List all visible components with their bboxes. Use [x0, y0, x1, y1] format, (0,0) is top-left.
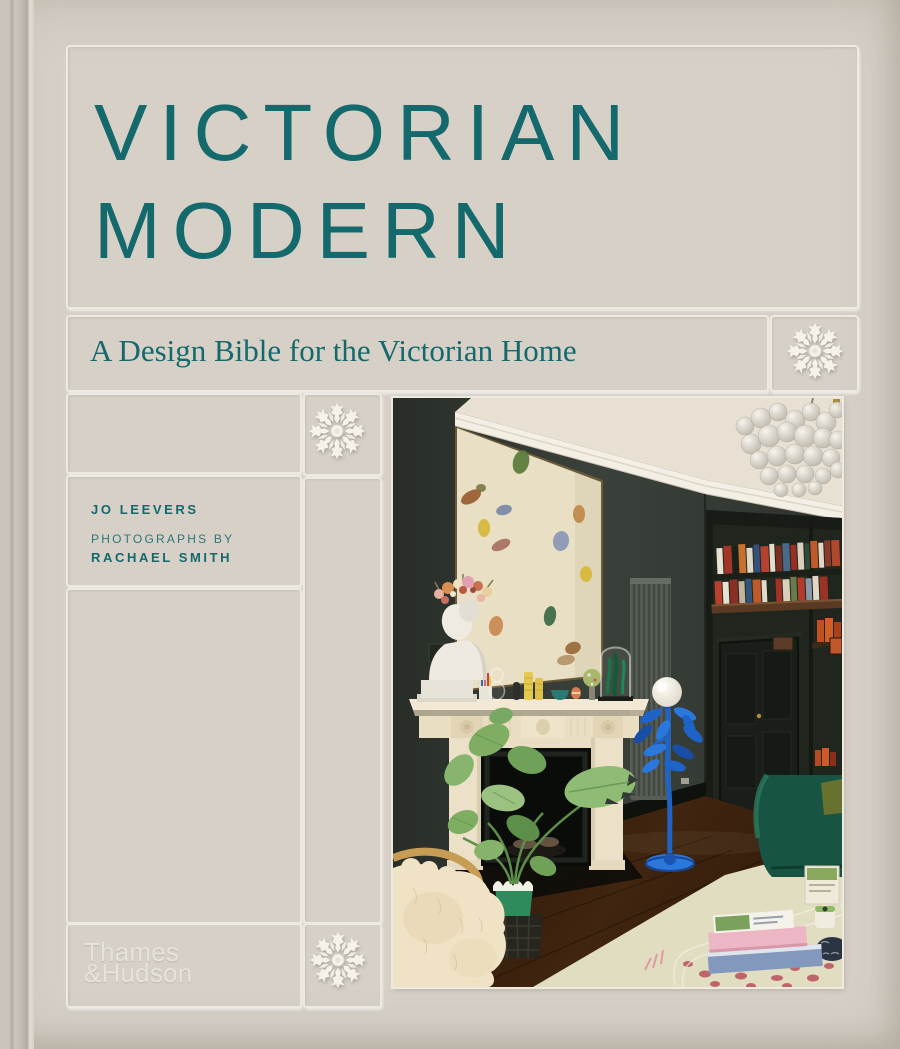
empty-panel [66, 393, 302, 474]
empty-tall-panel [66, 588, 302, 924]
wall-socket [681, 778, 689, 784]
photo-credit-prefix: PHOTOGRAPHS BY [91, 532, 234, 546]
author-block: JO LEEVERS PHOTOGRAPHS BY RACHAEL SMITH [91, 502, 234, 565]
rosette-icon [307, 401, 367, 461]
book-box-on-sofa [805, 866, 839, 904]
book-subtitle: A Design Bible for the Victorian Home [90, 333, 577, 369]
title-line-2: MODERN [94, 182, 636, 280]
yellow-candlestick [524, 672, 533, 700]
door-knob [757, 714, 761, 718]
globe-shade [652, 677, 682, 707]
title-line-1: VICTORIAN [94, 84, 636, 182]
book-spine-edge [0, 0, 34, 1049]
glass-dome [598, 648, 633, 702]
rosette-icon [308, 930, 368, 990]
rosette-icon [785, 321, 845, 381]
publisher-logo: Thames &Hudson [84, 942, 192, 984]
glass-vase [490, 668, 505, 700]
author-name: JO LEEVERS [91, 502, 234, 517]
publisher-line-2: &Hudson [84, 963, 192, 984]
empty-narrow-panel [303, 477, 382, 924]
book-title: VICTORIAN MODERN [94, 84, 636, 280]
green-velvet-sofa [756, 775, 842, 877]
photographer-name: RACHAEL SMITH [91, 550, 234, 565]
book-cover: VICTORIAN MODERN A Design Bible for the … [0, 0, 900, 1049]
interior-photograph [393, 398, 842, 987]
